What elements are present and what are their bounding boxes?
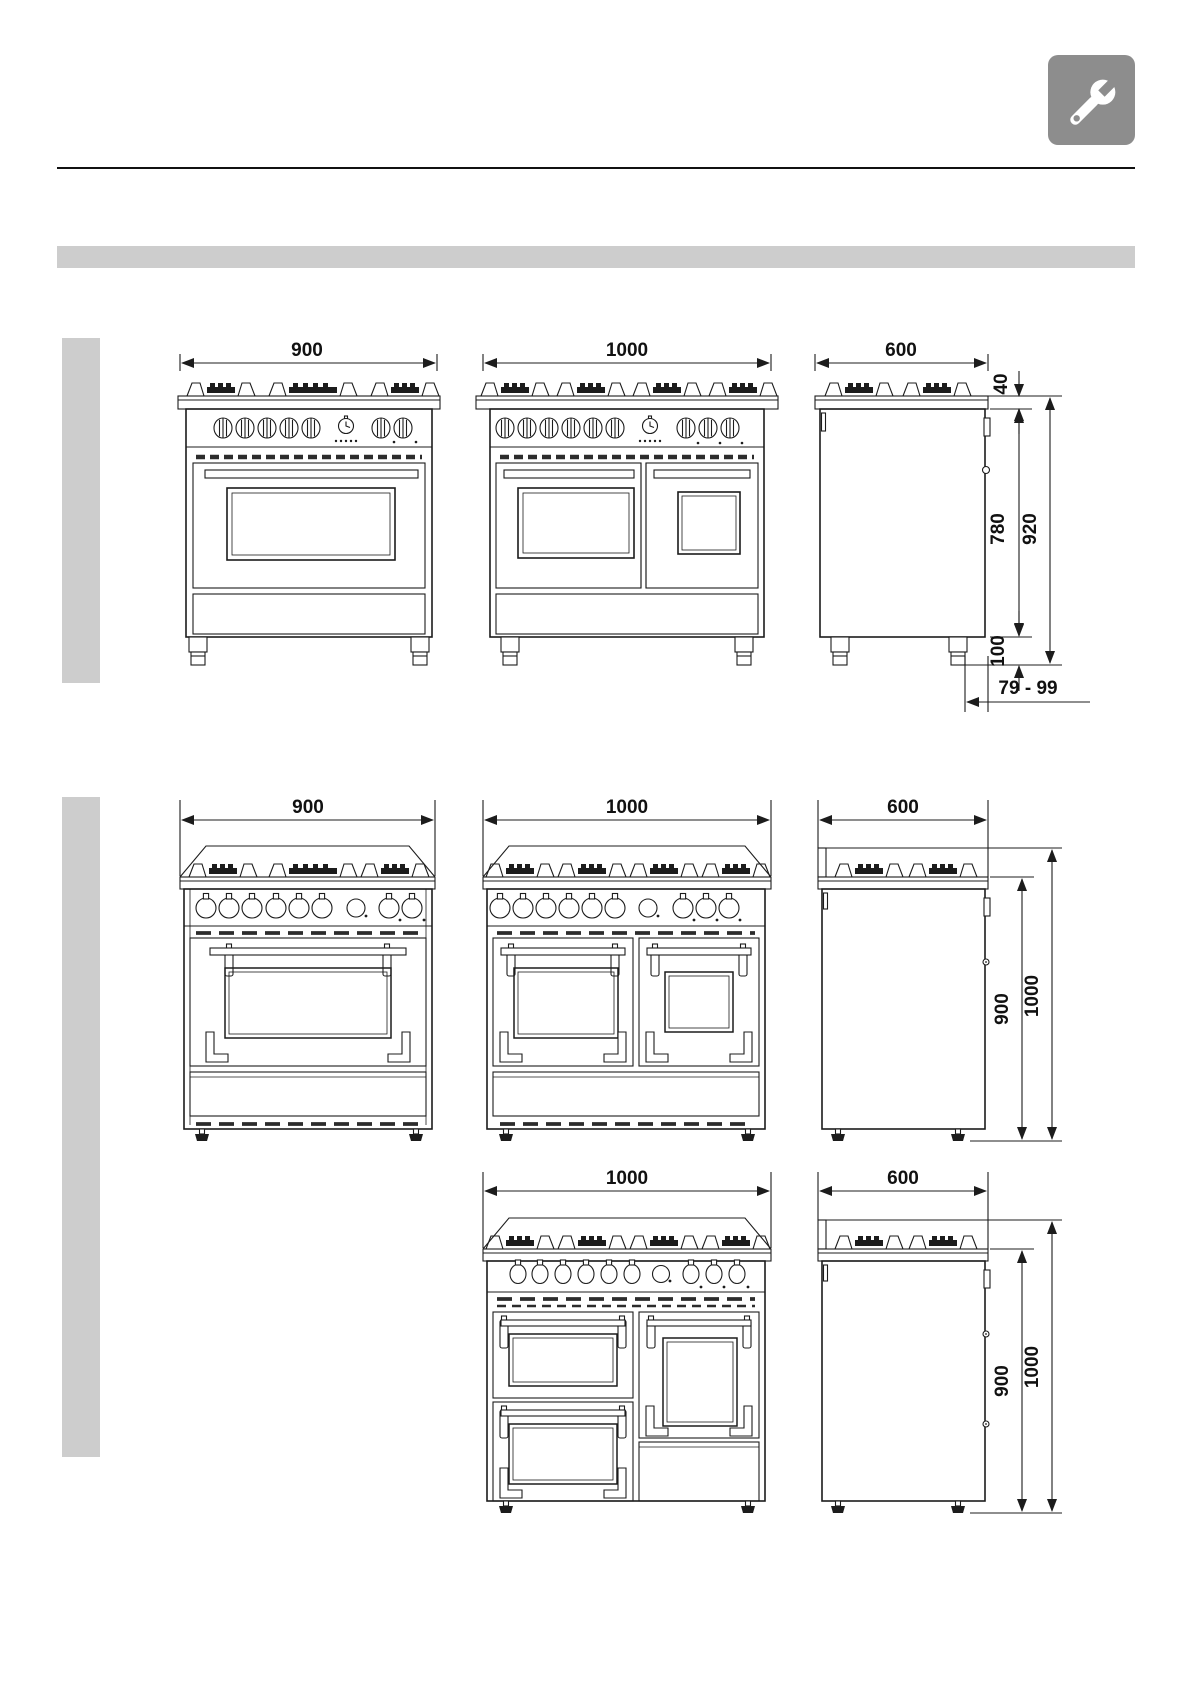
- g1-feet-label-100: 100: [988, 635, 1009, 667]
- g2-width-label-900: 900: [292, 797, 324, 818]
- g1-height-label-780: 780: [988, 513, 1009, 545]
- g1-height-label-40: 40: [991, 373, 1012, 394]
- g3-height-label-900: 900: [992, 1365, 1013, 1397]
- g3-depth-label-600: 600: [887, 1168, 919, 1189]
- g2-depth-label-600: 600: [887, 797, 919, 818]
- manual-page: 900 1000 600 40 780 920 100 79 - 99 900 …: [0, 0, 1191, 1684]
- dimension-drawings: 900 1000 600 40 780 920 100 79 - 99 900 …: [0, 0, 1191, 1684]
- g1-depth-label-600: 600: [885, 340, 917, 361]
- group1-1000-front-view: [476, 354, 778, 665]
- group3-1000-front-view: [483, 1172, 771, 1513]
- margin-bar-group-2-3: [62, 797, 100, 1457]
- group2-900-front-view: [180, 800, 435, 1141]
- group1-900-front-view: [178, 354, 440, 665]
- g3-width-label-1000: 1000: [606, 1168, 648, 1189]
- g1-width-label-900: 900: [291, 340, 323, 361]
- g2-height-label-1000: 1000: [1022, 975, 1043, 1017]
- g1-width-label-1000: 1000: [606, 340, 648, 361]
- group2-1000-front-view: [483, 800, 771, 1141]
- g2-width-label-1000: 1000: [606, 797, 648, 818]
- g2-height-label-900: 900: [992, 993, 1013, 1025]
- group1-600-side-view: [815, 354, 990, 665]
- g1-height-label-920: 920: [1020, 513, 1041, 545]
- margin-bar-group-1: [62, 338, 100, 683]
- g3-height-label-1000: 1000: [1022, 1346, 1043, 1388]
- group3-600-side-view: [818, 1172, 990, 1513]
- g1-feet-range-label: 79 - 99: [998, 678, 1057, 699]
- group2-600-side-view: [818, 800, 990, 1141]
